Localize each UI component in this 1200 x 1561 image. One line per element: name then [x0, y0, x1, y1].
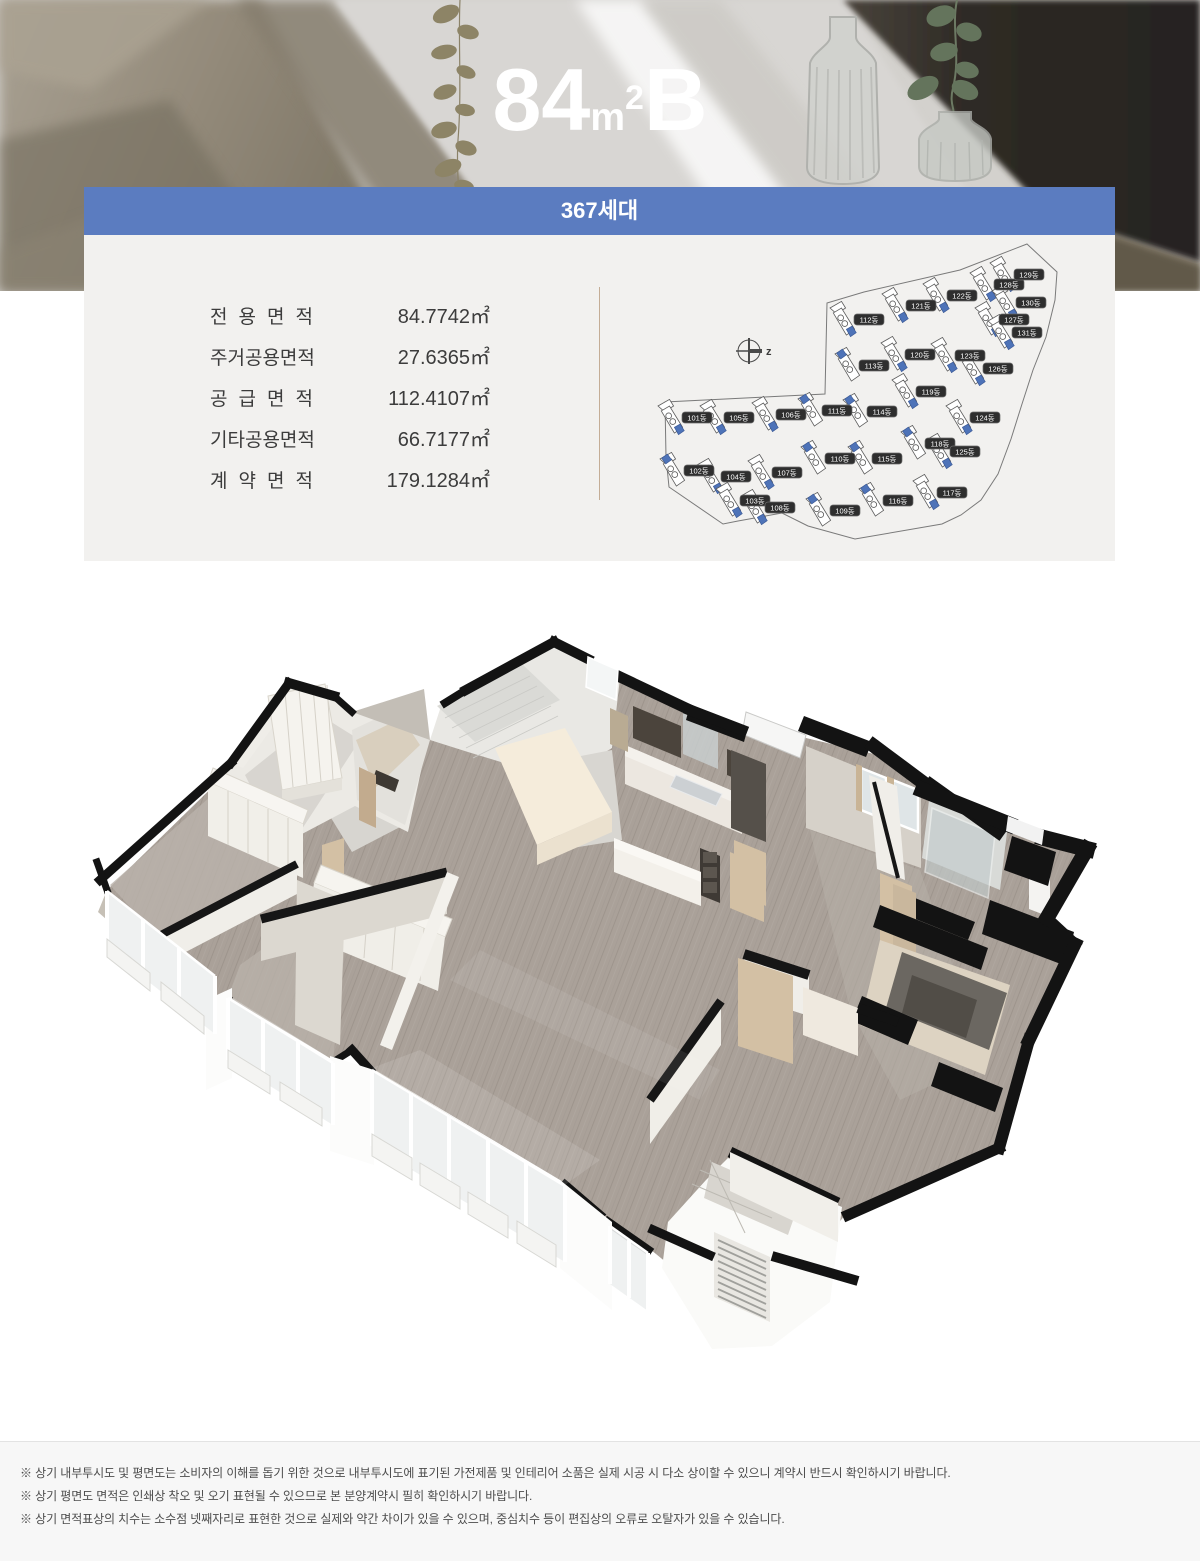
svg-text:123동: 123동	[960, 352, 980, 361]
svg-text:110동: 110동	[831, 455, 850, 464]
svg-text:112동: 112동	[860, 316, 879, 325]
svg-text:106동: 106동	[781, 411, 801, 420]
svg-text:108동: 108동	[770, 504, 790, 513]
svg-text:129동: 129동	[1019, 271, 1039, 280]
svg-text:105동: 105동	[729, 414, 749, 423]
svg-text:126동: 126동	[988, 365, 1008, 374]
svg-text:115동: 115동	[878, 455, 897, 464]
svg-text:113동: 113동	[865, 362, 884, 371]
svg-text:121동: 121동	[911, 302, 931, 311]
svg-text:111동: 111동	[828, 407, 846, 416]
svg-text:116동: 116동	[889, 497, 908, 506]
svg-text:z: z	[766, 346, 772, 358]
svg-text:118동: 118동	[931, 440, 950, 449]
svg-text:101동: 101동	[687, 414, 707, 423]
svg-text:130동: 130동	[1021, 299, 1041, 308]
svg-text:125동: 125동	[955, 448, 975, 457]
svg-text:124동: 124동	[975, 414, 995, 423]
svg-text:107동: 107동	[777, 469, 797, 478]
svg-text:114동: 114동	[873, 408, 892, 417]
svg-text:109동: 109동	[835, 507, 855, 516]
svg-text:119동: 119동	[922, 388, 941, 397]
svg-text:127동: 127동	[1004, 316, 1024, 325]
svg-text:102동: 102동	[689, 467, 709, 476]
svg-text:120동: 120동	[910, 351, 930, 360]
svg-text:104동: 104동	[726, 473, 746, 482]
svg-text:117동: 117동	[943, 489, 962, 498]
svg-text:122동: 122동	[952, 292, 972, 301]
svg-text:103동: 103동	[745, 497, 765, 506]
svg-text:128동: 128동	[999, 281, 1019, 290]
svg-text:131동: 131동	[1017, 329, 1037, 338]
